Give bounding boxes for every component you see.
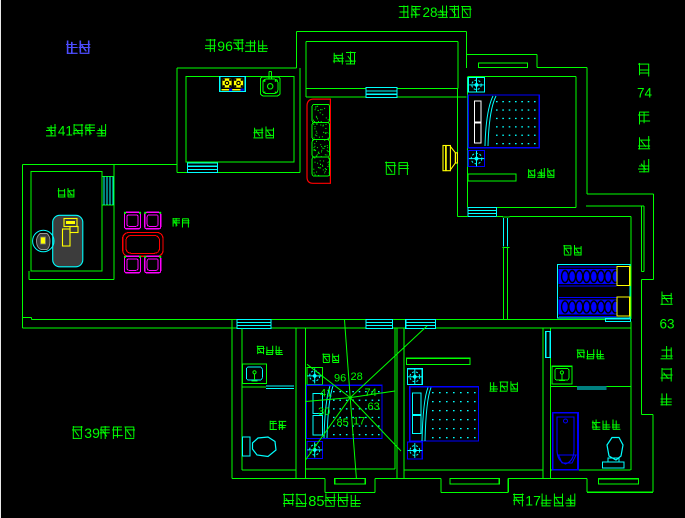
svg-text:17: 17 xyxy=(353,416,365,428)
svg-text:30: 30 xyxy=(318,406,330,418)
svg-text:41: 41 xyxy=(320,388,332,400)
svg-text:39: 39 xyxy=(84,425,100,441)
svg-text:85: 85 xyxy=(308,494,324,510)
svg-text:28: 28 xyxy=(351,371,363,383)
svg-text:85: 85 xyxy=(337,417,349,429)
svg-text:41: 41 xyxy=(58,124,73,139)
svg-text:74: 74 xyxy=(637,86,653,101)
svg-text:63: 63 xyxy=(660,317,675,332)
svg-text:74: 74 xyxy=(365,387,377,399)
svg-text:96: 96 xyxy=(334,373,346,385)
svg-text:63: 63 xyxy=(368,401,380,413)
svg-text:17: 17 xyxy=(525,493,541,509)
svg-text:28: 28 xyxy=(423,5,438,20)
svg-text:96: 96 xyxy=(217,38,233,54)
